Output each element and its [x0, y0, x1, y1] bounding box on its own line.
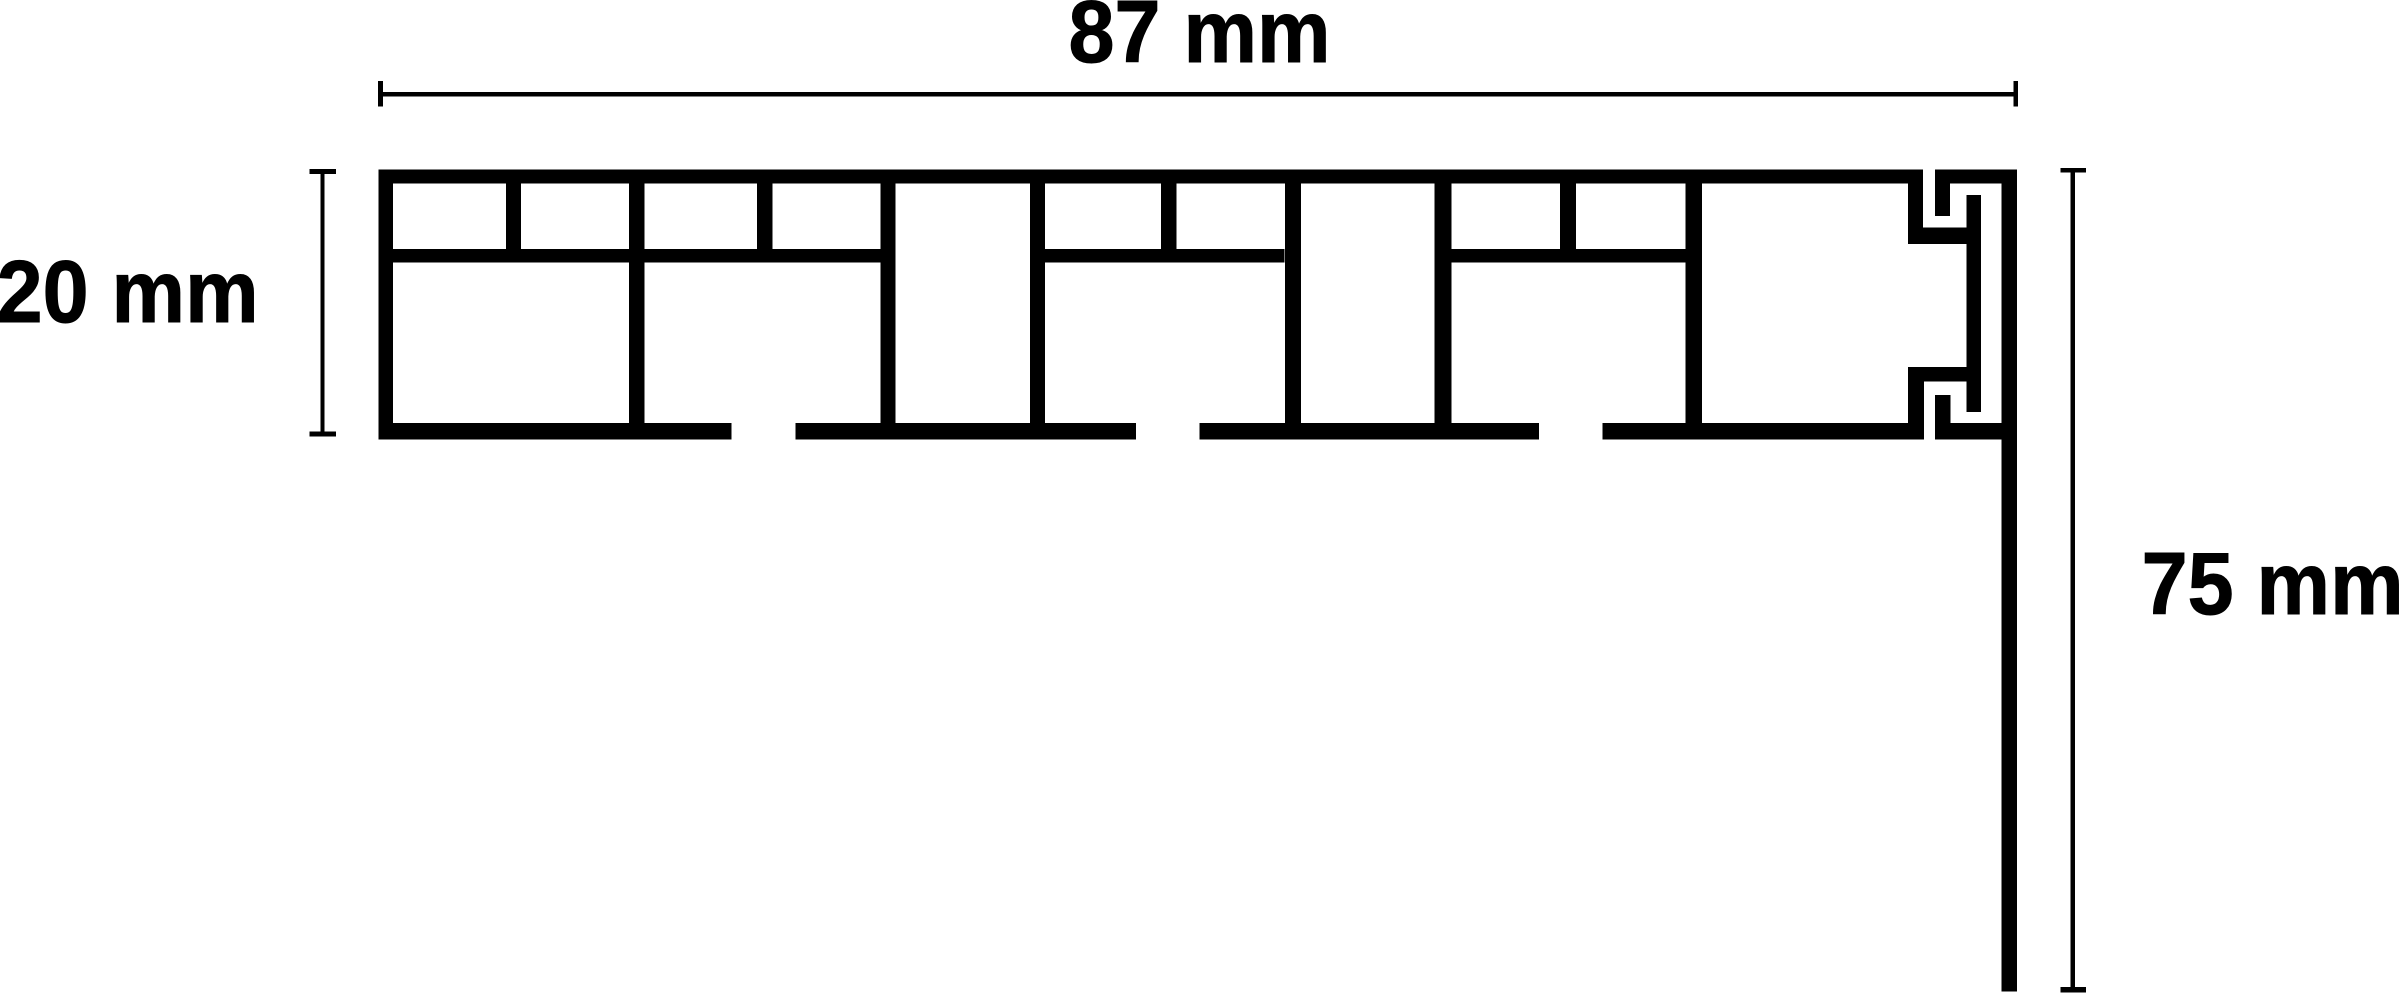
svg-text:20 mm: 20 mm: [0, 242, 259, 341]
svg-text:75 mm: 75 mm: [2142, 534, 2400, 633]
svg-text:87 mm: 87 mm: [1069, 0, 1331, 81]
